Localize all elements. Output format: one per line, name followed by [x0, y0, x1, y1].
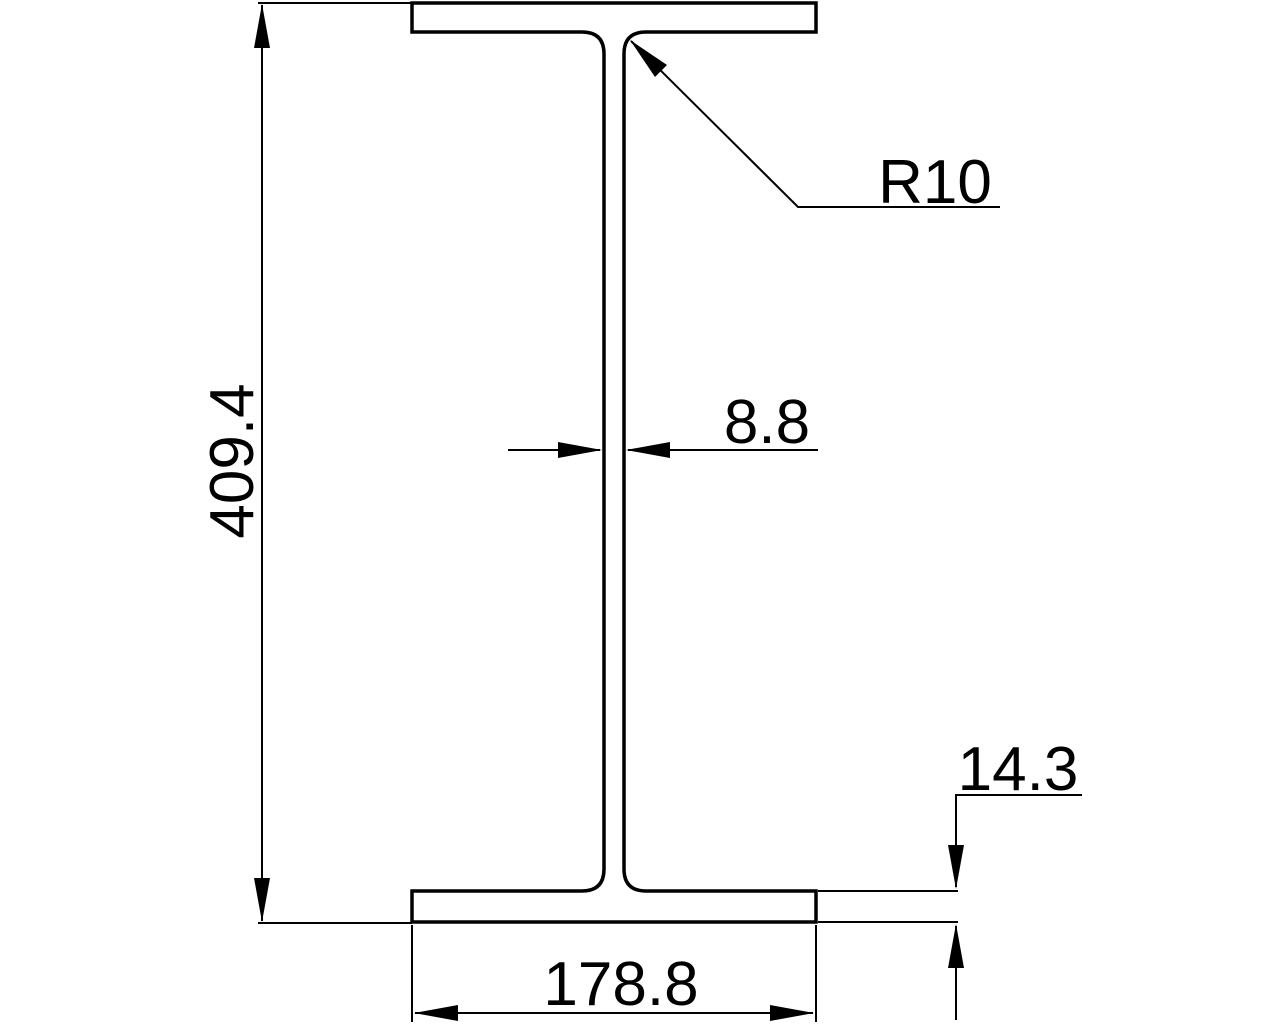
dimension-flange-thickness: 14.3 — [818, 735, 1082, 1020]
web-thickness-label: 8.8 — [724, 388, 810, 457]
dimension-web-thickness: 8.8 — [508, 388, 818, 458]
arrowhead-up-icon — [254, 4, 270, 48]
leader-fillet-radius: R10 — [630, 40, 1000, 217]
i-beam-section-drawing: 409.4 R10 8.8 14.3 — [0, 0, 1280, 1024]
arrowhead-right-icon — [558, 442, 602, 458]
arrowhead-left-icon — [414, 1005, 458, 1021]
flange-thickness-label: 14.3 — [958, 735, 1079, 804]
arrowhead-up-icon — [948, 924, 964, 968]
dimension-overall-height: 409.4 — [198, 3, 412, 923]
fillet-radius-label: R10 — [878, 148, 992, 217]
arrowhead-right-icon — [770, 1005, 814, 1021]
dimension-flange-width: 178.8 — [412, 925, 816, 1022]
overall-height-label: 409.4 — [198, 383, 267, 538]
technical-drawing-canvas: 409.4 R10 8.8 14.3 — [0, 0, 1280, 1024]
i-beam-outline — [412, 3, 816, 922]
arrowhead-down-icon — [254, 878, 270, 922]
flange-width-label: 178.8 — [543, 950, 698, 1019]
arrowhead-left-icon — [626, 442, 670, 458]
arrowhead-down-icon — [948, 845, 964, 889]
